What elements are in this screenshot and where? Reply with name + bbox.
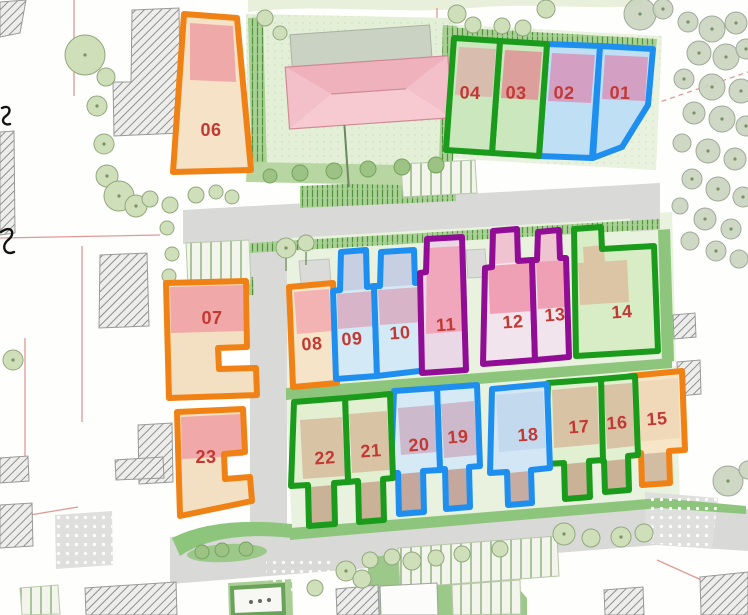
tree	[492, 541, 508, 557]
plot-building	[337, 291, 374, 329]
tree	[681, 232, 699, 250]
parking-row-south-west	[20, 585, 60, 615]
plot-number: 07	[201, 308, 222, 328]
parking-row-south-2	[452, 580, 521, 615]
existing-building	[115, 457, 164, 480]
plot-number: 12	[502, 311, 524, 332]
tree	[292, 165, 308, 181]
tree-center	[706, 149, 709, 152]
tree	[448, 5, 466, 23]
tree-center	[284, 246, 287, 249]
store-dot	[267, 598, 271, 602]
existing-building	[99, 253, 149, 328]
plot-building	[566, 462, 589, 497]
ancillary-store	[232, 585, 284, 615]
plot-number: 09	[341, 328, 363, 349]
tree-center	[102, 142, 105, 145]
plot-number: 15	[646, 408, 668, 429]
plot-number: 02	[553, 82, 575, 103]
tree	[730, 250, 748, 268]
tree	[298, 235, 314, 251]
plot-number: 04	[459, 82, 481, 103]
site-plan-map: 0102030406070809101112131415161718192021…	[0, 0, 748, 615]
plot-07[interactable]: 07	[166, 281, 257, 398]
existing-building	[604, 587, 644, 615]
tree-center	[661, 7, 664, 10]
tree	[635, 524, 653, 542]
plot-number: 18	[517, 424, 539, 445]
tree	[454, 546, 470, 562]
tree	[360, 161, 376, 177]
tree-center	[692, 111, 695, 114]
tree-center	[716, 187, 719, 190]
tree	[537, 0, 555, 18]
tree-center	[134, 204, 137, 207]
plot-number: 17	[568, 416, 590, 437]
existing-building	[336, 585, 379, 615]
plot-number: 16	[606, 412, 628, 433]
plot-building	[360, 481, 383, 520]
tree-center	[726, 479, 729, 482]
tree-center	[720, 117, 723, 120]
tree-center	[734, 21, 737, 24]
tree-center	[686, 20, 689, 23]
tree	[582, 529, 600, 547]
tree-center	[690, 177, 693, 180]
tree-center	[710, 27, 713, 30]
plot-building	[190, 23, 236, 82]
tree	[142, 191, 158, 207]
tree	[209, 185, 223, 199]
tree	[160, 221, 174, 235]
tree	[362, 552, 378, 568]
tree-center	[744, 47, 747, 50]
tree-center	[105, 174, 108, 177]
plot-building	[509, 471, 531, 503]
plot-number: 23	[195, 447, 216, 467]
plot-building	[382, 252, 414, 287]
store-building	[232, 585, 284, 615]
tree	[257, 10, 273, 26]
tree	[729, 79, 748, 103]
tree	[428, 157, 444, 173]
tree-center	[95, 104, 98, 107]
tree	[515, 20, 531, 36]
store-dot	[258, 599, 262, 603]
garage-roof	[299, 259, 331, 284]
tree	[465, 17, 481, 33]
plot-building	[378, 287, 423, 325]
tree-center	[741, 195, 744, 198]
tree	[733, 187, 748, 207]
tree-center	[744, 124, 747, 127]
plot-number: 19	[447, 426, 469, 447]
plot-number: 13	[544, 304, 566, 325]
plot-building	[400, 472, 423, 512]
tree-center	[733, 157, 736, 160]
tree-center	[710, 85, 713, 88]
tree	[97, 68, 115, 86]
plot-number: 06	[200, 120, 221, 140]
tree-center	[729, 227, 732, 230]
tree	[384, 549, 400, 565]
tree-center	[562, 532, 565, 535]
tree	[273, 26, 287, 40]
tree	[225, 190, 239, 204]
existing-building	[0, 456, 29, 483]
tree	[394, 159, 410, 175]
plot-06[interactable]: 06	[173, 14, 251, 172]
plot-number: 11	[435, 314, 456, 335]
plot-building	[310, 485, 334, 524]
plot-building	[539, 232, 559, 262]
plot-building	[342, 252, 366, 291]
tree	[239, 542, 253, 556]
plot-building	[643, 452, 669, 483]
tree-center	[739, 89, 742, 92]
tree-center	[714, 249, 717, 252]
tree-center	[703, 217, 706, 220]
tree	[353, 570, 371, 588]
tree	[403, 552, 421, 570]
plot-number: 03	[505, 82, 527, 103]
plot-number: 10	[389, 322, 411, 343]
plot-building	[536, 260, 566, 309]
crossing-dots-right	[645, 492, 718, 549]
existing-building	[700, 572, 748, 615]
plot-11[interactable]: 11	[420, 237, 466, 373]
plot-08[interactable]: 08	[289, 283, 337, 387]
plot-number: 21	[360, 440, 382, 461]
tree	[326, 163, 342, 179]
plot-number: 20	[408, 434, 430, 455]
plot-building	[294, 289, 332, 334]
plot-14[interactable]: 14	[574, 227, 658, 356]
plot-building	[447, 468, 469, 507]
tree-center	[11, 358, 14, 361]
tree-center	[682, 77, 685, 80]
existing-building	[673, 313, 696, 339]
tree-center	[619, 535, 622, 538]
plot-number: 22	[314, 447, 336, 468]
tree-center	[697, 51, 700, 54]
plot-building	[606, 459, 628, 490]
tree	[673, 134, 691, 152]
existing-building	[0, 503, 33, 548]
tree	[428, 550, 444, 566]
site-plan: 0102030406070809101112131415161718192021…	[0, 0, 748, 615]
tree	[263, 169, 277, 183]
tree	[188, 187, 204, 203]
plot-number: 08	[301, 333, 323, 354]
tree-center	[83, 53, 86, 56]
tree	[672, 198, 688, 214]
tree	[494, 18, 510, 34]
existing-building-white	[380, 583, 438, 615]
tree-center	[724, 55, 727, 58]
plot-building	[494, 231, 517, 264]
tree	[165, 247, 179, 261]
tree-center	[344, 569, 347, 572]
plot-04[interactable]: 04	[446, 38, 500, 153]
tree	[307, 580, 323, 596]
crossing-dots-left	[55, 511, 113, 569]
plot-number: 01	[609, 82, 631, 103]
existing-building	[0, 131, 15, 235]
tree-center	[638, 12, 641, 15]
tree	[195, 545, 209, 559]
tree-center	[117, 194, 120, 197]
plot-number: 14	[611, 301, 633, 322]
store-dot	[249, 600, 253, 604]
plot-building	[488, 263, 532, 314]
plot-building	[578, 260, 629, 305]
tree	[162, 197, 178, 213]
existing-building	[85, 582, 177, 615]
tree	[215, 543, 229, 557]
